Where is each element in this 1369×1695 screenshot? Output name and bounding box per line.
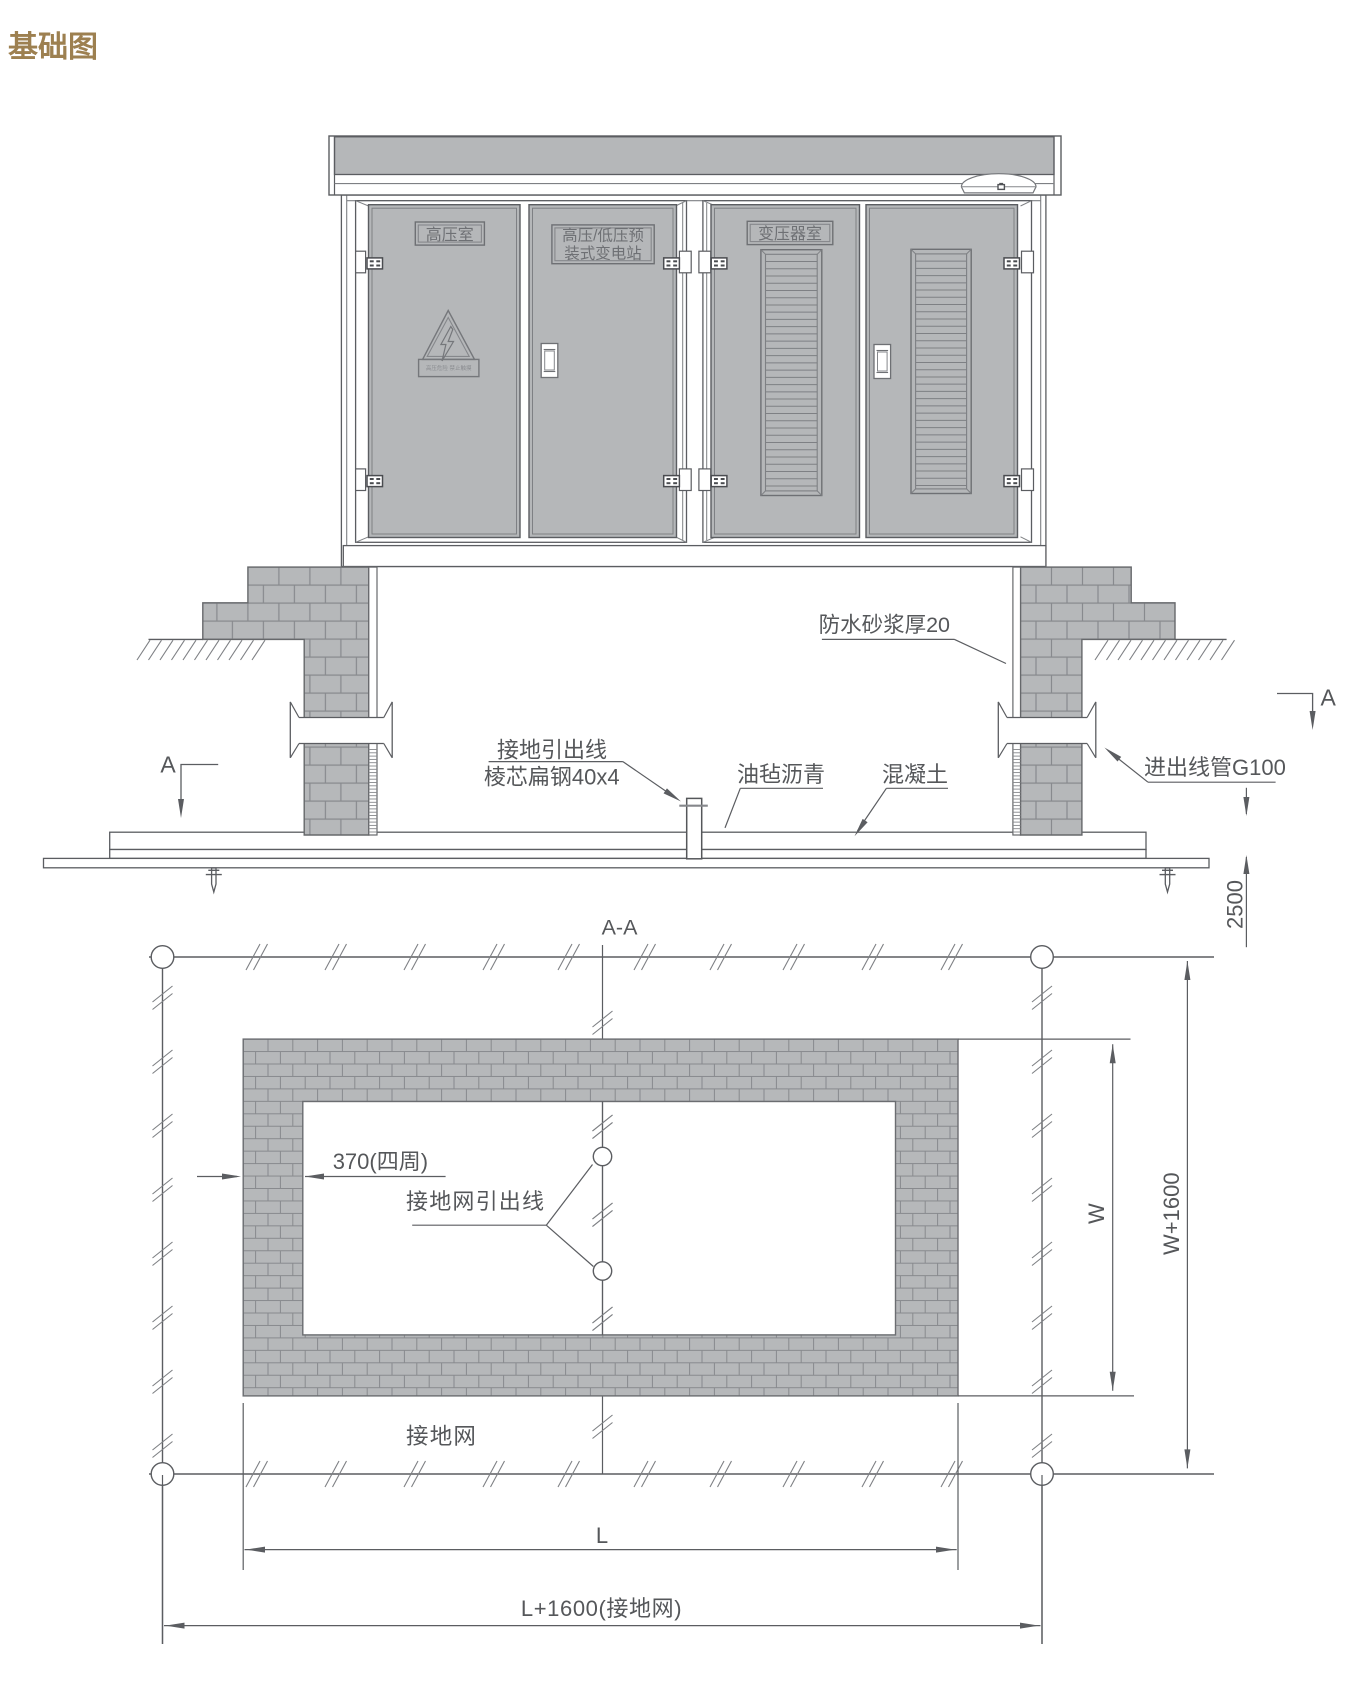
svg-text:高压/低压预: 高压/低压预 — [562, 227, 644, 245]
svg-text:高压危险 禁止触摸: 高压危险 禁止触摸 — [426, 364, 472, 372]
svg-text:基础图: 基础图 — [8, 31, 98, 64]
svg-text:防水砂浆厚20: 防水砂浆厚20 — [819, 613, 950, 637]
svg-text:A: A — [160, 752, 176, 778]
svg-text:油毡沥青: 油毡沥青 — [737, 762, 825, 787]
svg-text:接地引出线: 接地引出线 — [497, 738, 607, 763]
svg-text:L: L — [596, 1523, 608, 1548]
svg-text:接地网引出线: 接地网引出线 — [406, 1189, 545, 1214]
svg-text:2500: 2500 — [1223, 880, 1248, 929]
svg-text:A-A: A-A — [602, 916, 639, 940]
svg-text:W+1600: W+1600 — [1159, 1172, 1184, 1255]
svg-text:L+1600(接地网): L+1600(接地网) — [521, 1596, 682, 1621]
svg-text:370(四周): 370(四周) — [333, 1149, 428, 1174]
svg-text:高压室: 高压室 — [426, 226, 474, 244]
svg-text:棱芯扁钢40x4: 棱芯扁钢40x4 — [484, 765, 620, 790]
svg-text:混凝土: 混凝土 — [882, 762, 948, 787]
svg-text:接地网: 接地网 — [406, 1424, 477, 1449]
svg-text:进出线管G100: 进出线管G100 — [1144, 755, 1286, 780]
svg-text:变压器室: 变压器室 — [758, 225, 822, 243]
svg-text:装式变电站: 装式变电站 — [564, 244, 642, 262]
svg-text:W: W — [1084, 1203, 1109, 1224]
svg-text:A: A — [1321, 685, 1337, 711]
